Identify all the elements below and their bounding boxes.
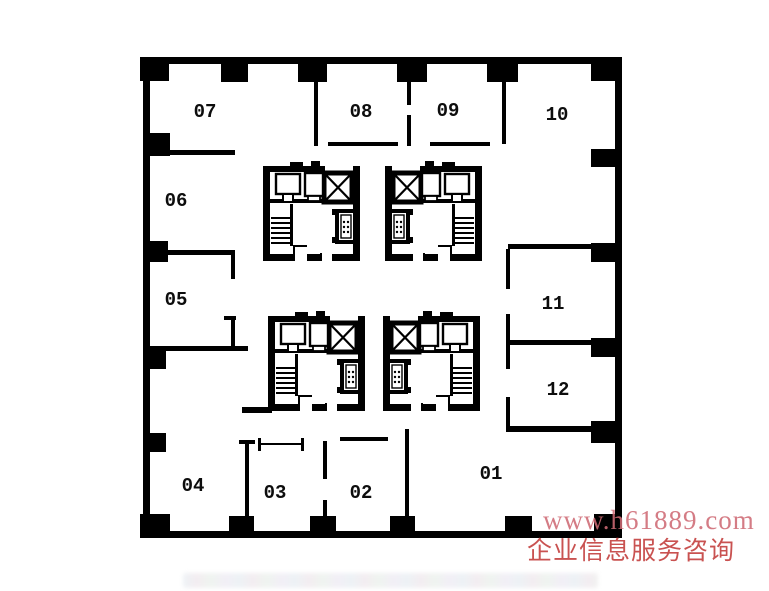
column [591, 421, 617, 443]
corridor-wall [242, 407, 272, 413]
column [298, 59, 327, 82]
core-unit-upper-left [263, 161, 360, 261]
column [390, 516, 415, 532]
room-label-12: 12 [547, 379, 570, 401]
wall-room-12-left-upper [506, 345, 510, 369]
faded-text-smudge [183, 573, 598, 588]
wall-room-05-right-lower [231, 316, 235, 349]
column [591, 243, 617, 262]
wall-room-08-09-upper [407, 82, 411, 105]
wall-room-09-10 [502, 77, 506, 144]
column [140, 514, 170, 538]
wall-room-02-right [405, 429, 409, 532]
wall-above-room-11 [508, 244, 594, 249]
wall-above-room-02 [340, 437, 388, 441]
core-unit-lower-left [268, 311, 365, 411]
column [221, 59, 248, 82]
column [591, 149, 617, 167]
room-label-10: 10 [546, 104, 569, 126]
wall-room-08-09-lower [407, 115, 411, 146]
column [143, 351, 166, 369]
wall-room-07-08 [314, 82, 318, 146]
outer-wall-right [615, 57, 622, 538]
room-label-08: 08 [350, 101, 373, 123]
wall-room-03-02-upper [323, 441, 327, 479]
room-label-11: 11 [542, 293, 565, 315]
column [505, 516, 532, 532]
wall-below-room-06 [149, 250, 235, 255]
wall-below-room-09 [430, 142, 490, 146]
wall-room-11-12 [508, 340, 594, 345]
room-label-05: 05 [165, 289, 188, 311]
room-label-01: 01 [480, 463, 503, 485]
outer-wall-left [143, 57, 150, 538]
column [140, 57, 169, 81]
floor-plan-screenshot: 07 08 09 10 06 05 11 12 04 03 02 01 www.… [0, 0, 769, 591]
column [397, 59, 427, 82]
room-label-03: 03 [264, 482, 287, 504]
outer-wall-top [143, 57, 622, 64]
room-label-09: 09 [437, 100, 460, 122]
room-label-07: 07 [194, 101, 217, 123]
floor-plan-drawing [0, 0, 769, 591]
room-label-04: 04 [182, 475, 205, 497]
wall-room-04-03 [245, 442, 249, 532]
column [591, 338, 617, 357]
wall-below-room-12 [508, 426, 594, 432]
wall-room-11-left-upper [506, 249, 510, 289]
wall-cap [239, 440, 255, 444]
core-unit-lower-right [383, 311, 480, 411]
wall-room-03-02-lower [323, 500, 327, 532]
wall-room-05-right-upper [231, 255, 235, 279]
room-label-06: 06 [165, 190, 188, 212]
dimension-marker [258, 438, 304, 451]
core-unit-upper-right [385, 161, 482, 261]
column [143, 433, 166, 452]
wall-below-room-08 [328, 142, 398, 146]
watermark-service-text: 企业信息服务咨询 [527, 531, 735, 567]
door-jamb [224, 316, 236, 320]
wall-below-room-05 [149, 346, 248, 351]
wall-below-room-07 [149, 150, 235, 155]
column [591, 57, 622, 81]
room-label-02: 02 [350, 482, 373, 504]
column [229, 516, 254, 532]
